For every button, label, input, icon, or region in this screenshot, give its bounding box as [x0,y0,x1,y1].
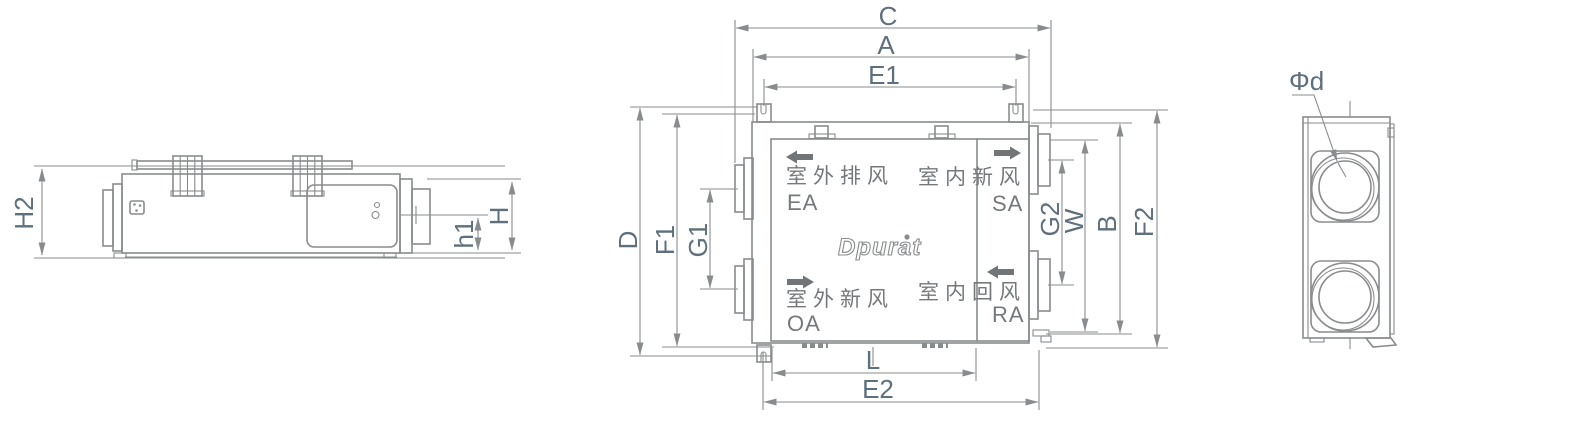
dim-label-l: L [866,345,880,375]
side-right-duct-flange [400,179,430,253]
port-oa-name: 室外新风 [786,288,894,311]
dim-label-e1: E1 [868,60,900,90]
oa-flow-arrow [787,276,814,289]
side-view: H2 H h1 [9,156,521,258]
ea-flow-arrow [786,151,813,164]
port-ea-code: EA [787,190,818,215]
dim-label-a: A [877,30,895,60]
plan-port-sa-flange [1029,126,1050,194]
sa-flow-arrow [994,147,1021,160]
access-panel [307,185,397,247]
port-sa-code: SA [992,191,1023,216]
dim-label-g1: G1 [683,223,713,258]
top-clip-left [809,126,835,139]
panel-indicator-dot-small [375,203,380,208]
hrv-dimension-drawing: H2 H h1 [0,0,1571,430]
top-rail [137,161,352,169]
end-top-right-clip [1388,128,1394,137]
ra-flow-arrow [987,266,1014,279]
plan-view: 室外排风 EA 室内新风 SA 室外新风 OA 室内回风 RA Dpurat C… [613,1,1168,410]
dim-label-h: H [484,207,514,226]
dim-label-h1: h1 [449,220,479,249]
end-view: Φd [1289,66,1396,349]
side-left-duct-flange [103,184,122,251]
port-ea-name: 室外排风 [786,165,894,188]
hanger-bracket-left [171,156,204,196]
drawing-svg: H2 H h1 [0,0,1571,430]
phi-d-leader-tail [1338,163,1346,177]
dim-label-w: W [1059,208,1089,233]
dim-label-b: B [1092,215,1122,232]
top-clip-right [929,126,955,139]
end-body-outline [1303,117,1390,338]
port-ra-name: 室内回风 [918,281,1026,304]
side-body-outline [122,174,400,253]
dim-label-f1: F1 [650,225,680,255]
dim-label-c: C [879,1,898,31]
end-foot-right [1366,338,1396,347]
end-duct-port-bottom [1311,261,1379,332]
panel-indicator-dot-large [372,212,379,219]
port-sa-name: 室内新风 [918,166,1026,189]
brand-logo-mark [904,234,909,239]
port-ra-code: RA [992,302,1025,327]
foot-bottom-right [1033,330,1051,342]
dim-label-d: D [613,231,643,250]
hanger-tab-top-left [757,104,771,122]
dim-label-e2: E2 [862,374,894,404]
electrical-box-icon [130,201,144,214]
dim-label-h2: H2 [9,196,39,229]
hanger-tab-top-right [1009,104,1023,122]
plan-port-ra-flange [1029,251,1050,319]
dim-label-phi-d: Φd [1289,66,1324,96]
end-duct-port-top [1311,151,1379,222]
dim-label-f2: F2 [1129,207,1159,237]
port-oa-code: OA [787,311,821,336]
